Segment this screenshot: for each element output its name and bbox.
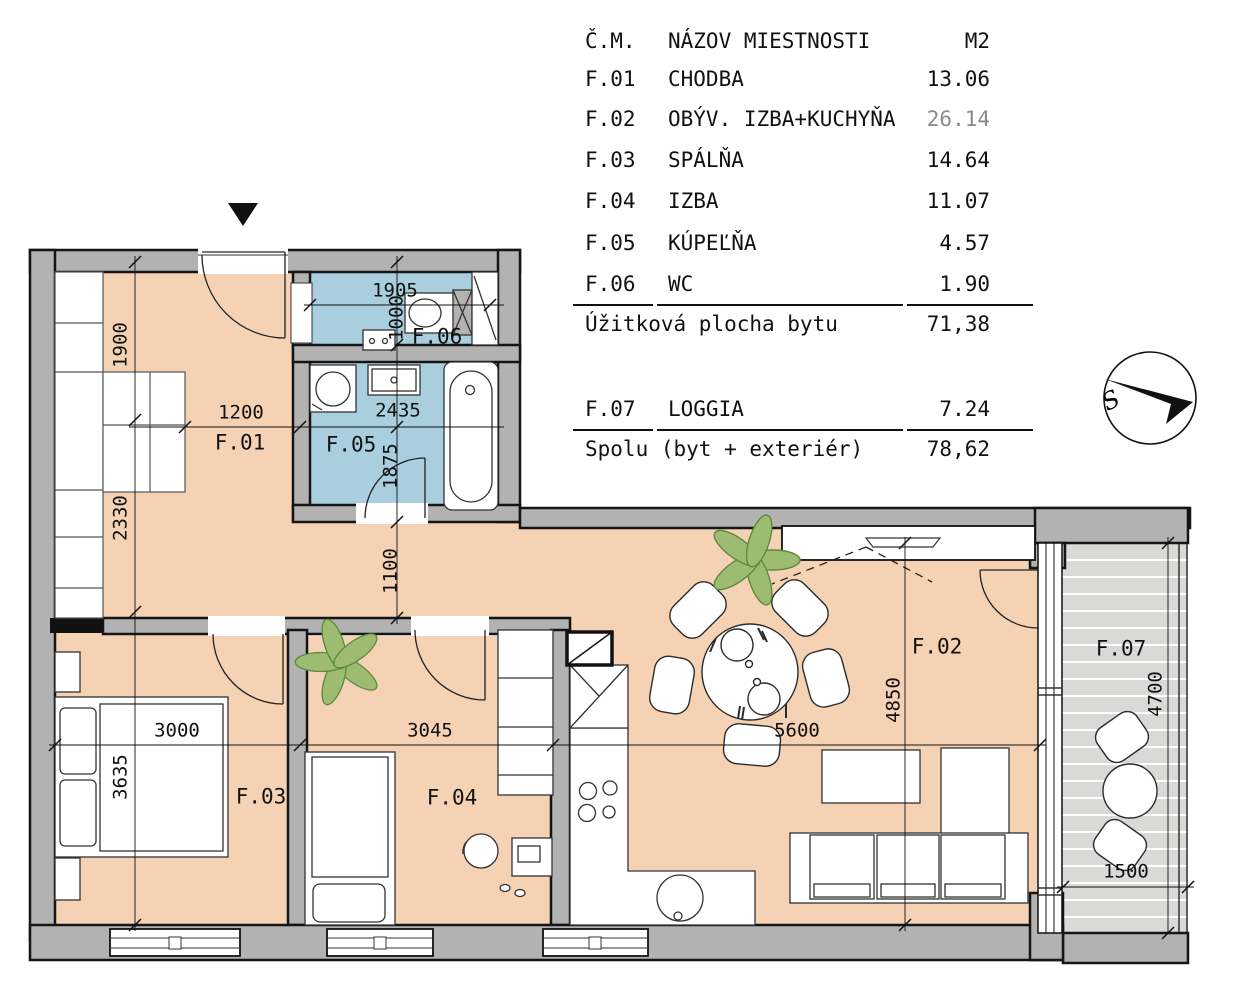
header-area: M2 — [965, 29, 990, 53]
header-name: NÁZOV MIESTNOSTI — [668, 29, 870, 53]
dim-3635: 3635 — [112, 754, 131, 800]
subtotal-row: Úžitková plocha bytu 71,38 — [570, 312, 1035, 338]
table-row: F.06 WC 1.90 — [570, 272, 1035, 298]
dim-2435: 2435 — [375, 402, 421, 421]
table-row: F.05 KÚPEĽŇA 4.57 — [570, 231, 1035, 257]
room-area: 11.07 — [927, 189, 990, 213]
room-number: F.07 — [585, 397, 636, 421]
room-area: 26.14 — [927, 107, 990, 131]
floor-plan-page: S F.01 F.02 F.03 F.04 F.05 F.06 F.07 190… — [0, 0, 1237, 1008]
dim-1100: 1100 — [382, 548, 401, 594]
dim-5600: 5600 — [774, 722, 820, 741]
room-name: LOGGIA — [668, 397, 744, 421]
room-name: SPÁLŇA — [668, 148, 744, 172]
room-label-f02: F.02 — [912, 637, 963, 658]
room-area: 14.64 — [927, 148, 990, 172]
room-label-f03: F.03 — [236, 787, 287, 808]
table-rule — [907, 304, 1033, 306]
room-name: KÚPEĽŇA — [668, 231, 757, 255]
subtotal-value: 71,38 — [927, 312, 990, 336]
room-name: WC — [668, 272, 693, 296]
room-number: F.01 — [585, 67, 636, 91]
table-rule — [573, 304, 653, 306]
total-row: Spolu (byt + exteriér) 78,62 — [570, 437, 1035, 463]
loggia-row: F.07 LOGGIA 7.24 — [570, 397, 1035, 423]
room-name: IZBA — [668, 189, 719, 213]
table-rule — [657, 429, 903, 431]
room-number: F.03 — [585, 148, 636, 172]
table-row: F.01 CHODBA 13.06 — [570, 67, 1035, 93]
table-rule — [573, 429, 653, 431]
dim-1000: 1000 — [388, 295, 407, 341]
room-number: F.02 — [585, 107, 636, 131]
room-label-f01: F.01 — [215, 433, 266, 454]
table-rule — [907, 429, 1033, 431]
room-area: 1.90 — [939, 272, 990, 296]
dim-3045: 3045 — [407, 722, 453, 741]
table-rule — [657, 304, 903, 306]
dim-1875: 1875 — [382, 443, 401, 489]
table-header: Č.M. NÁZOV MIESTNOSTI M2 — [570, 29, 1035, 55]
subtotal-label: Úžitková plocha bytu — [585, 312, 838, 336]
room-label-f05: F.05 — [326, 435, 377, 456]
total-value: 78,62 — [927, 437, 990, 461]
table-row: F.02 OBÝV. IZBA+KUCHYŇA 26.14 — [570, 107, 1035, 133]
room-label-f07: F.07 — [1096, 639, 1147, 660]
dim-3000: 3000 — [154, 722, 200, 741]
dim-4850: 4850 — [885, 677, 904, 723]
total-label: Spolu (byt + exteriér) — [585, 437, 863, 461]
room-area: 7.24 — [939, 397, 990, 421]
room-number: F.05 — [585, 231, 636, 255]
dim-1500: 1500 — [1103, 863, 1149, 882]
entrance-marker-icon — [228, 203, 258, 226]
room-area-table: Č.M. NÁZOV MIESTNOSTI M2 F.01 CHODBA 13.… — [570, 0, 1040, 470]
dim-4700: 4700 — [1147, 671, 1166, 717]
dim-2330: 2330 — [112, 495, 131, 541]
dim-1900: 1900 — [112, 322, 131, 368]
dim-1200: 1200 — [218, 404, 264, 423]
header-number: Č.M. — [585, 29, 636, 53]
room-label-f06: F.06 — [412, 327, 463, 348]
room-label-f04: F.04 — [427, 788, 478, 809]
room-name: OBÝV. IZBA+KUCHYŇA — [668, 107, 896, 131]
loggia-glazing — [1038, 543, 1062, 933]
room-area: 4.57 — [939, 231, 990, 255]
north-arrow-icon: S — [1097, 352, 1196, 444]
room-name: CHODBA — [668, 67, 744, 91]
room-area: 13.06 — [927, 67, 990, 91]
room-number: F.04 — [585, 189, 636, 213]
room-number: F.06 — [585, 272, 636, 296]
table-row: F.04 IZBA 11.07 — [570, 189, 1035, 215]
wall-stub — [50, 618, 103, 633]
table-row: F.03 SPÁLŇA 14.64 — [570, 148, 1035, 174]
